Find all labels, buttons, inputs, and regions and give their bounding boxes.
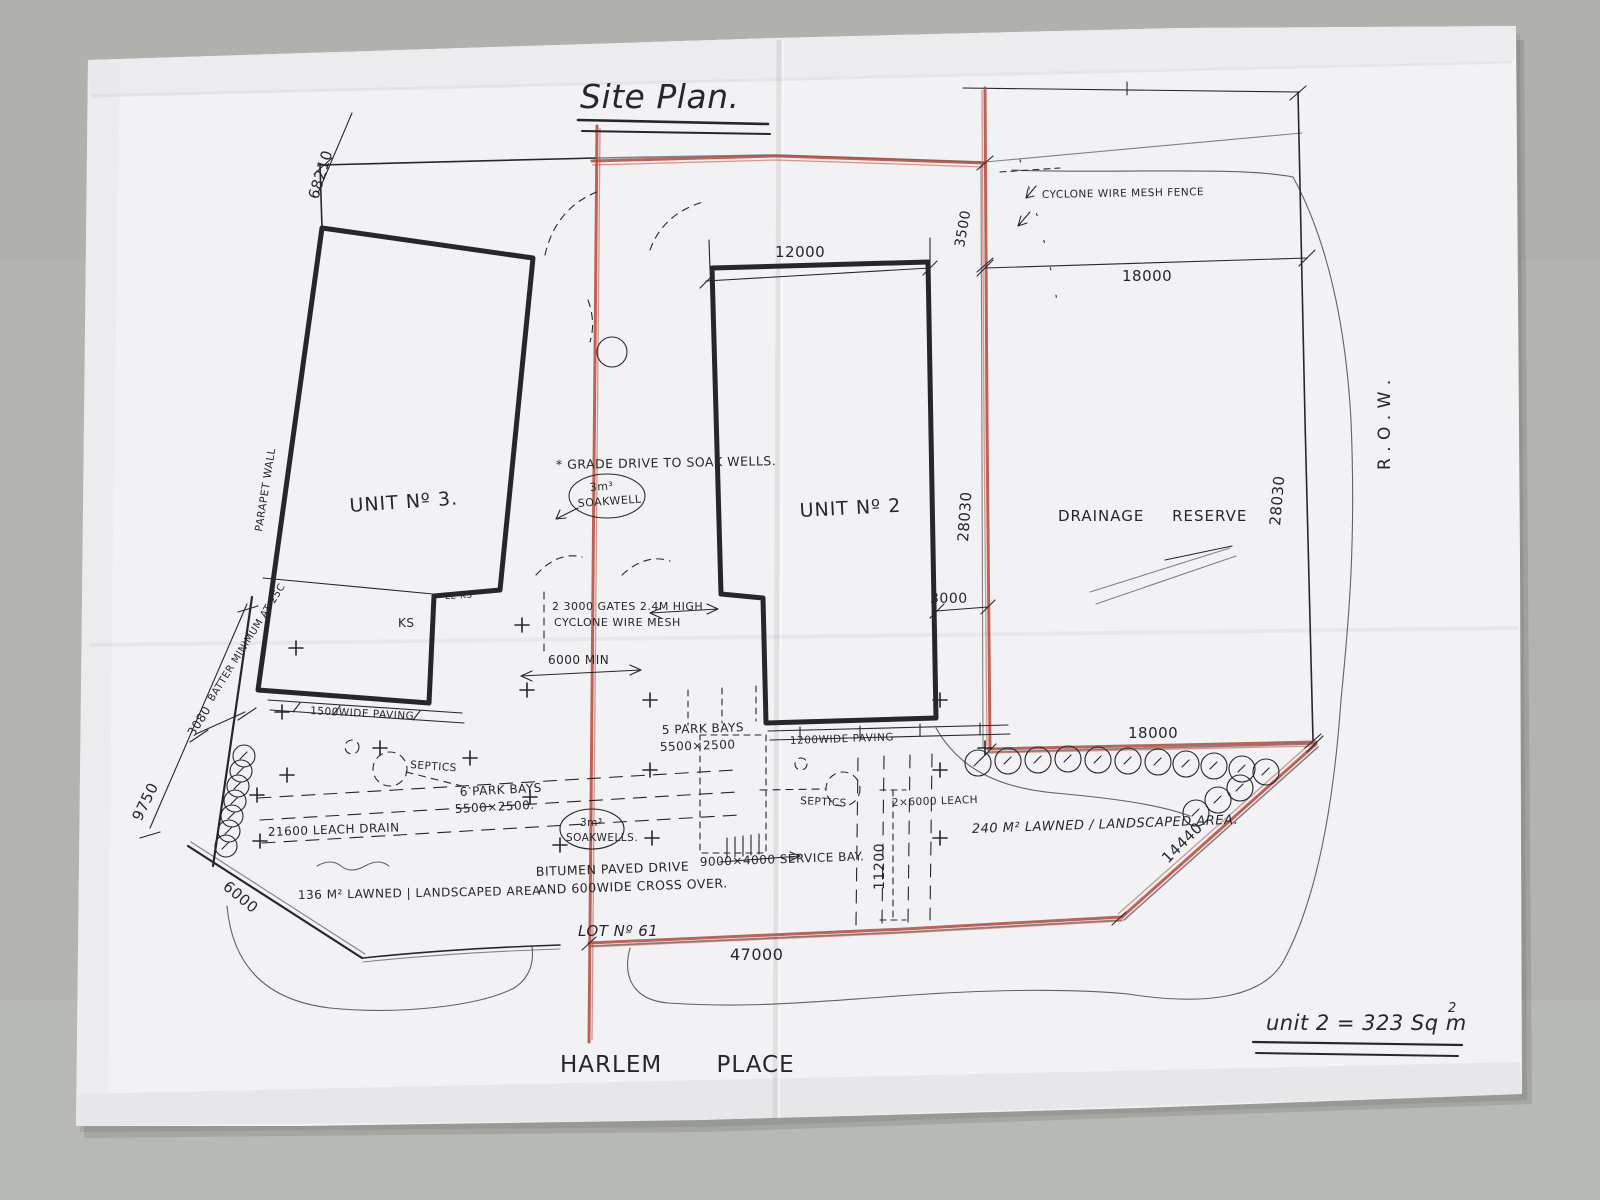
photo-of-site-plan: Site Plan. UNIT Nº 3. UNIT Nº 2 DRAINAGE… bbox=[0, 0, 1600, 1200]
note-soakwells-mid-2: SOAKWELLS. bbox=[566, 832, 638, 844]
dim-6000-min: 6000 MIN bbox=[548, 653, 609, 667]
note-park-bays-5-2: 5500×2500 bbox=[660, 737, 736, 754]
dim-3000: 3000 bbox=[930, 591, 968, 607]
note-septics-right: SEPTICS bbox=[800, 795, 847, 809]
paper-sheet bbox=[76, 26, 1522, 1126]
drainage-reserve-label: DRAINAGE RESERVE bbox=[1058, 507, 1247, 525]
dim-47000: 47000 bbox=[730, 945, 783, 964]
dim-18000-bottom: 18000 bbox=[1128, 724, 1178, 742]
dim-12000: 12000 bbox=[775, 243, 825, 261]
note-gates-2: CYCLONE WIRE MESH bbox=[554, 616, 681, 629]
note-soakwells-mid-1: 3m³ bbox=[580, 817, 603, 829]
note-soakwell-top-1: 3m³ bbox=[589, 479, 613, 494]
dim-18000-top: 18000 bbox=[1122, 267, 1172, 285]
row-label: R . O . W . bbox=[1375, 379, 1395, 470]
note-le-ks: LE KS bbox=[445, 591, 473, 602]
site-plan-drawing: Site Plan. UNIT Nº 3. UNIT Nº 2 DRAINAGE… bbox=[0, 0, 1600, 1200]
note-park-bays-5-1: 5 PARK BAYS bbox=[662, 720, 745, 737]
note-ks: KS bbox=[398, 616, 415, 630]
note-gates-1: 2 3000 GATES 2.4M HIGH bbox=[552, 600, 703, 613]
lot-number-label: LOT Nº 61 bbox=[578, 922, 658, 940]
dim-28030-red: 28030 bbox=[954, 491, 975, 542]
unit2-area-note: unit 2 = 323 Sq m bbox=[1266, 1011, 1467, 1035]
plan-title: Site Plan. bbox=[580, 77, 740, 116]
street-name-label: HARLEM PLACE bbox=[560, 1052, 795, 1078]
dim-11200: 11200 bbox=[872, 843, 888, 890]
unit2-area-note-sup: 2 bbox=[1448, 1001, 1457, 1016]
